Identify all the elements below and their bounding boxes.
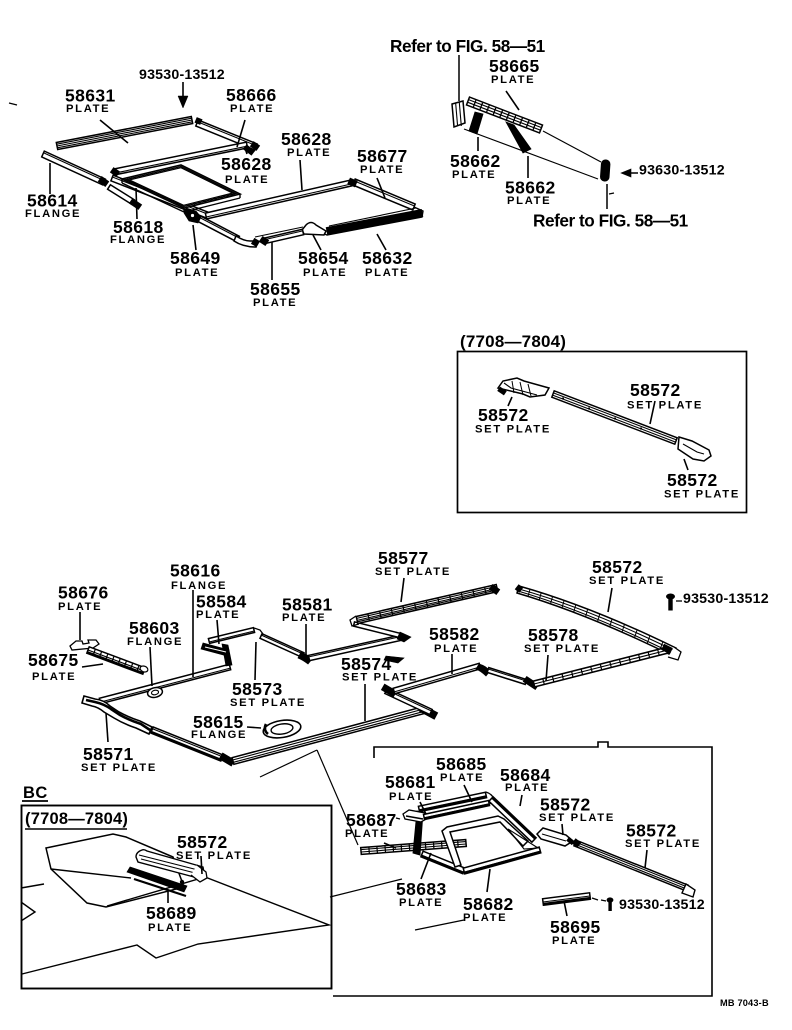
svg-text:PLATE: PLATE: [225, 174, 269, 186]
svg-text:FLANGE: FLANGE: [127, 636, 183, 648]
svg-text:58572: 58572: [630, 380, 681, 400]
svg-text:58573: 58573: [232, 679, 283, 699]
svg-text:BC: BC: [23, 784, 48, 802]
svg-text:58577: 58577: [378, 548, 429, 568]
svg-text:58654: 58654: [298, 248, 349, 268]
svg-text:(7708—7804): (7708—7804): [25, 810, 128, 828]
svg-text:58682: 58682: [463, 894, 514, 914]
svg-text:PLATE: PLATE: [253, 297, 297, 309]
svg-text:58582: 58582: [429, 624, 480, 644]
svg-text:PLATE: PLATE: [282, 612, 326, 624]
svg-text:FLANGE: FLANGE: [25, 208, 81, 220]
svg-text:58628: 58628: [281, 129, 332, 149]
svg-text:PLATE: PLATE: [32, 671, 76, 683]
svg-text:PLATE: PLATE: [175, 267, 219, 279]
svg-text:PLATE: PLATE: [360, 164, 404, 176]
svg-text:PLATE: PLATE: [230, 103, 274, 115]
svg-text:93530-13512: 93530-13512: [683, 591, 769, 607]
svg-text:PLATE: PLATE: [491, 74, 535, 86]
svg-text:58685: 58685: [436, 754, 487, 774]
svg-text:58689: 58689: [146, 903, 197, 923]
svg-text:58632: 58632: [362, 248, 413, 268]
svg-text:58695: 58695: [550, 917, 601, 937]
svg-text:58578: 58578: [528, 625, 579, 645]
svg-text:PLATE: PLATE: [452, 169, 496, 181]
svg-text:58662: 58662: [450, 151, 501, 171]
svg-text:58655: 58655: [250, 279, 301, 299]
svg-text:FLANGE: FLANGE: [171, 580, 227, 592]
svg-text:58649: 58649: [170, 248, 221, 268]
svg-text:SET PLATE: SET PLATE: [524, 643, 600, 655]
svg-text:58687: 58687: [346, 810, 397, 830]
svg-text:PLATE: PLATE: [440, 772, 484, 784]
svg-text:PLATE: PLATE: [505, 782, 549, 794]
svg-text:93530-13512: 93530-13512: [619, 897, 705, 913]
svg-text:58683: 58683: [396, 879, 447, 899]
svg-text:PLATE: PLATE: [345, 828, 389, 840]
svg-text:PLATE: PLATE: [389, 791, 433, 803]
svg-text:SET PLATE: SET PLATE: [625, 838, 701, 850]
svg-text:58628: 58628: [221, 154, 272, 174]
svg-text:PLATE: PLATE: [196, 609, 240, 621]
svg-text:58572: 58572: [177, 832, 228, 852]
svg-text:PLATE: PLATE: [303, 267, 347, 279]
svg-text:58603: 58603: [129, 618, 180, 638]
svg-text:(7708—7804): (7708—7804): [460, 332, 566, 351]
svg-text:PLATE: PLATE: [365, 267, 409, 279]
svg-text:58681: 58681: [385, 772, 436, 792]
svg-text:PLATE: PLATE: [434, 643, 478, 655]
svg-text:Refer to FIG. 58—51: Refer to FIG. 58—51: [533, 211, 689, 231]
svg-text:FLANGE: FLANGE: [191, 729, 247, 741]
svg-text:Refer to FIG. 58—51: Refer to FIG. 58—51: [390, 36, 546, 56]
svg-text:PLATE: PLATE: [507, 195, 551, 207]
svg-text:SET PLATE: SET PLATE: [81, 762, 157, 774]
svg-text:SET PLATE: SET PLATE: [539, 812, 615, 824]
svg-text:PLATE: PLATE: [58, 601, 102, 613]
svg-text:93630-13512: 93630-13512: [639, 163, 725, 179]
svg-text:SET PLATE: SET PLATE: [342, 672, 418, 684]
svg-text:58665: 58665: [489, 56, 540, 76]
svg-text:58666: 58666: [226, 85, 277, 105]
svg-text:58677: 58677: [357, 146, 408, 166]
svg-text:58572: 58572: [592, 557, 643, 577]
svg-text:58571: 58571: [83, 744, 134, 764]
svg-text:58616: 58616: [170, 561, 221, 581]
svg-text:PLATE: PLATE: [66, 103, 110, 115]
svg-text:PLATE: PLATE: [399, 897, 443, 909]
svg-text:FLANGE: FLANGE: [110, 234, 166, 246]
svg-text:SET PLATE: SET PLATE: [627, 400, 703, 412]
svg-text:MB 7043-B: MB 7043-B: [720, 998, 769, 1008]
svg-text:58572: 58572: [667, 470, 718, 490]
svg-text:58675: 58675: [28, 650, 79, 670]
svg-text:58572: 58572: [478, 405, 529, 425]
svg-text:PLATE: PLATE: [463, 912, 507, 924]
svg-text:SET PLATE: SET PLATE: [664, 489, 740, 501]
svg-text:58676: 58676: [58, 583, 109, 603]
svg-text:PLATE: PLATE: [287, 147, 331, 159]
svg-text:93530-13512: 93530-13512: [139, 67, 225, 83]
svg-text:SET PLATE: SET PLATE: [589, 575, 665, 587]
svg-text:SET PLATE: SET PLATE: [375, 566, 451, 578]
svg-text:PLATE: PLATE: [552, 935, 596, 947]
svg-text:SET PLATE: SET PLATE: [230, 697, 306, 709]
svg-text:SET PLATE: SET PLATE: [475, 424, 551, 436]
svg-text:PLATE: PLATE: [148, 922, 192, 934]
svg-text:SET PLATE: SET PLATE: [176, 850, 252, 862]
